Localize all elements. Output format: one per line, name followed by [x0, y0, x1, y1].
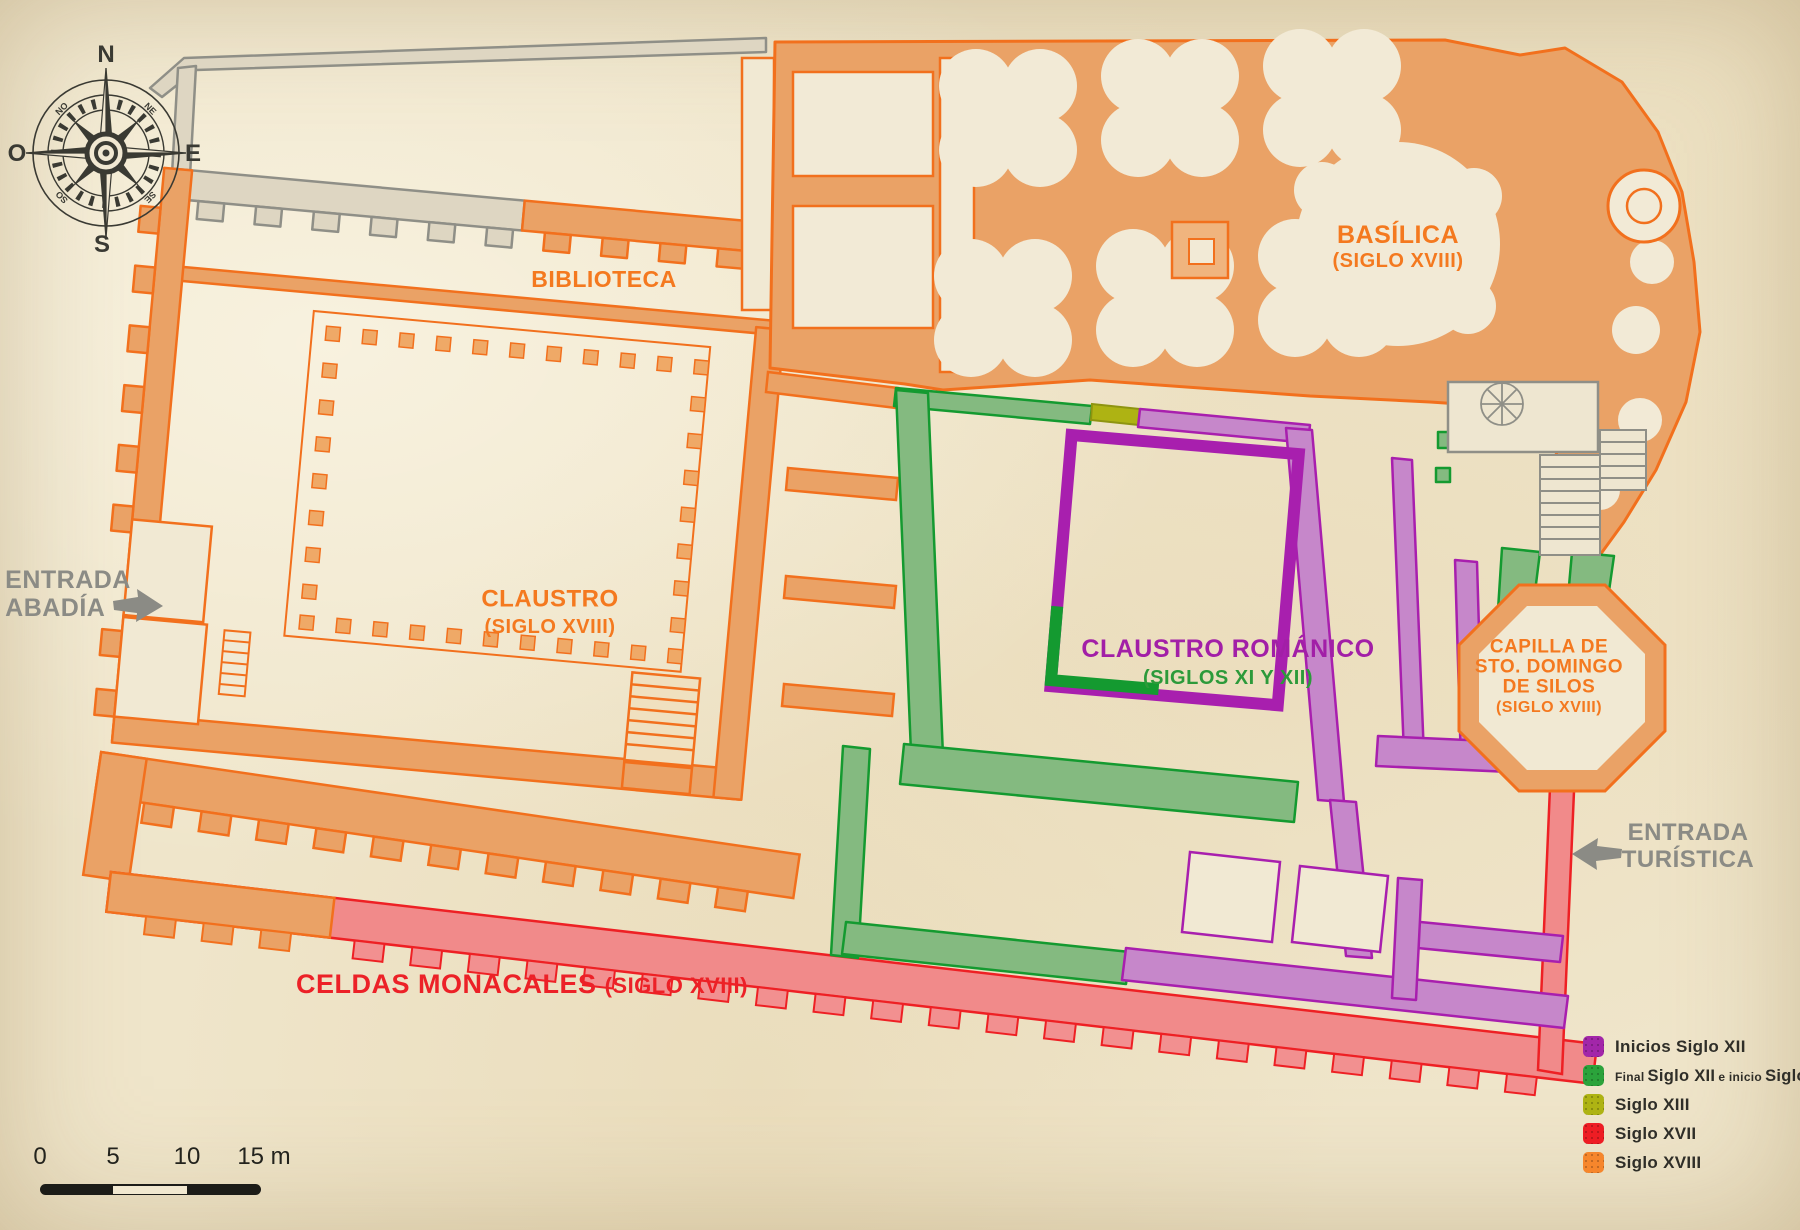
gray-wall-strip: [150, 38, 766, 176]
legend-label: Siglo XVII: [1615, 1124, 1696, 1144]
scale-tick-15m: 15 m: [237, 1143, 290, 1171]
tourist-entrance-arrow: [1572, 838, 1622, 870]
round-apse: [1608, 170, 1680, 242]
east-staircase: [622, 672, 700, 794]
central-pier: [1172, 222, 1228, 278]
capilla-label-line1: CAPILLA DE: [1490, 638, 1608, 659]
basilica-sublabel: (SIGLO XVIII): [1333, 250, 1464, 272]
spiral-staircase: [1481, 383, 1523, 425]
capilla-label-line3: DE SILOS: [1503, 678, 1596, 699]
compass-o: O: [8, 140, 27, 167]
scale-bar: [40, 1184, 261, 1195]
legend-row-siglo-xviii: Siglo XVIII: [1583, 1152, 1800, 1173]
capilla-label-line4: (SIGLO XVIII): [1496, 699, 1602, 717]
compass-s: S: [94, 231, 110, 258]
small-staircase: [219, 630, 251, 696]
claustro-sublabel: (SIGLO XVIII): [485, 616, 616, 638]
legend-label: Siglo XVIII: [1615, 1153, 1701, 1173]
grand-staircase: [1540, 455, 1600, 555]
legend-row-inicios-xii: Inicios Siglo XII: [1583, 1036, 1800, 1057]
legend-row-siglo-xiii: Siglo XIII: [1583, 1094, 1800, 1115]
siglo-xiii-segment: [1091, 404, 1140, 425]
compass-n: N: [97, 41, 114, 68]
legend-row-siglo-xvii: Siglo XVII: [1583, 1123, 1800, 1144]
capilla-label-line2: STO. DOMINGO: [1475, 658, 1623, 679]
entrada-abadia-label: ENTRADA ABADÍA: [5, 566, 131, 622]
celdas-label: CELDAS MONACALES (SIGLO XVIII): [296, 969, 748, 999]
claustro-romanico-sublabel: (SIGLOS XI Y XII): [1143, 667, 1313, 689]
compass-e: E: [185, 140, 201, 167]
legend-swatch-red: [1583, 1123, 1604, 1144]
side-steps: [1600, 430, 1646, 490]
legend: Inicios Siglo XII FinalSiglo XIIe inicio…: [1583, 1036, 1800, 1173]
legend-label: Inicios Siglo XII: [1615, 1037, 1746, 1057]
legend-swatch-green: [1583, 1065, 1604, 1086]
monastery-floor-plan: N S E O NO NE SO SE BIBLIOTECA CLAUSTRO …: [0, 0, 1800, 1230]
scale-tick-0: 0: [33, 1143, 46, 1171]
legend-swatch-olive: [1583, 1094, 1604, 1115]
garth-ring: [1051, 435, 1299, 705]
plan-drawing: N S E O NO NE SO SE: [0, 0, 1800, 1230]
scale-tick-10: 10: [174, 1143, 201, 1171]
legend-swatch-purple: [1583, 1036, 1604, 1057]
claustro-xviii-region: [92, 166, 794, 800]
entrada-turistica-label: ENTRADA TURÍSTICA: [1622, 820, 1755, 874]
claustro-label: CLAUSTRO: [481, 587, 618, 614]
scale-bar-middle-segment: [113, 1186, 187, 1194]
legend-label: Siglo XIII: [1615, 1095, 1690, 1115]
claustro-romanico-label: CLAUSTRO ROMÁNICO: [1081, 635, 1374, 663]
biblioteca-label: BIBLIOTECA: [531, 267, 677, 293]
legend-label: FinalSiglo XIIe inicioSiglo XIII: [1615, 1066, 1800, 1086]
scale-tick-5: 5: [106, 1143, 119, 1171]
legend-row-final-xii: FinalSiglo XIIe inicioSiglo XIII: [1583, 1065, 1800, 1086]
basilica-label: BASÍLICA: [1337, 221, 1459, 249]
legend-swatch-orange: [1583, 1152, 1604, 1173]
